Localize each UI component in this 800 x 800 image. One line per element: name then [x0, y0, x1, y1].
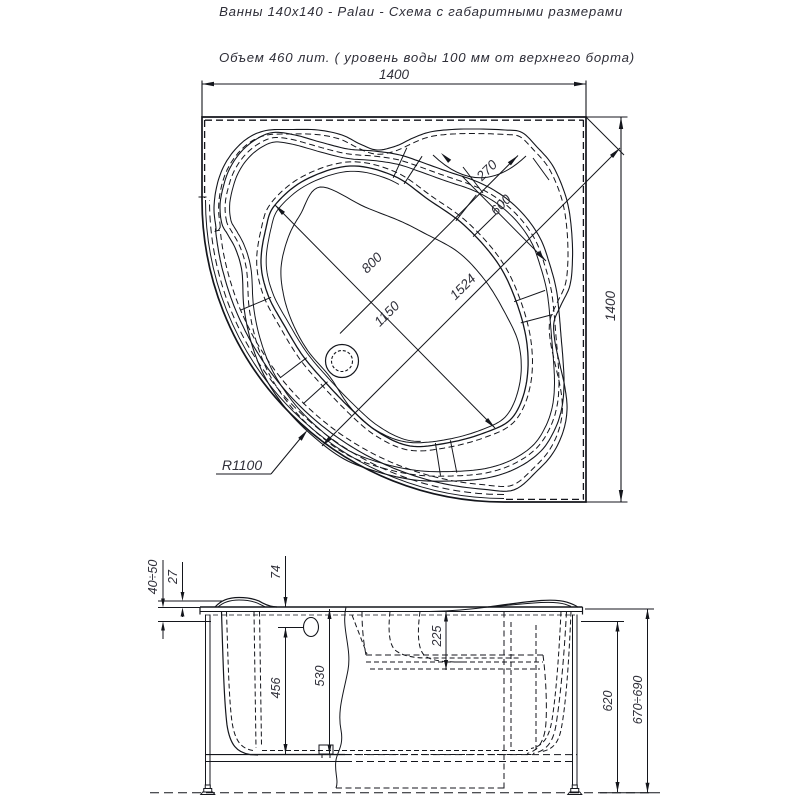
svg-text:530: 530 — [313, 666, 327, 687]
svg-text:27: 27 — [166, 569, 180, 585]
svg-text:Объем 460 лит. ( уровень воды: Объем 460 лит. ( уровень воды 100 мм от … — [219, 50, 635, 65]
svg-text:40÷50: 40÷50 — [146, 560, 160, 595]
svg-text:225: 225 — [430, 626, 444, 648]
svg-text:620: 620 — [601, 691, 615, 712]
svg-text:670÷690: 670÷690 — [631, 676, 645, 725]
svg-text:1400: 1400 — [603, 290, 618, 321]
svg-text:Ванны 140x140 - Palau - Схема: Ванны 140x140 - Palau - Схема с габаритн… — [219, 4, 623, 19]
svg-text:74: 74 — [269, 565, 283, 579]
svg-text:1400: 1400 — [379, 67, 410, 82]
svg-text:R1100: R1100 — [222, 457, 262, 473]
svg-text:456: 456 — [269, 678, 283, 699]
